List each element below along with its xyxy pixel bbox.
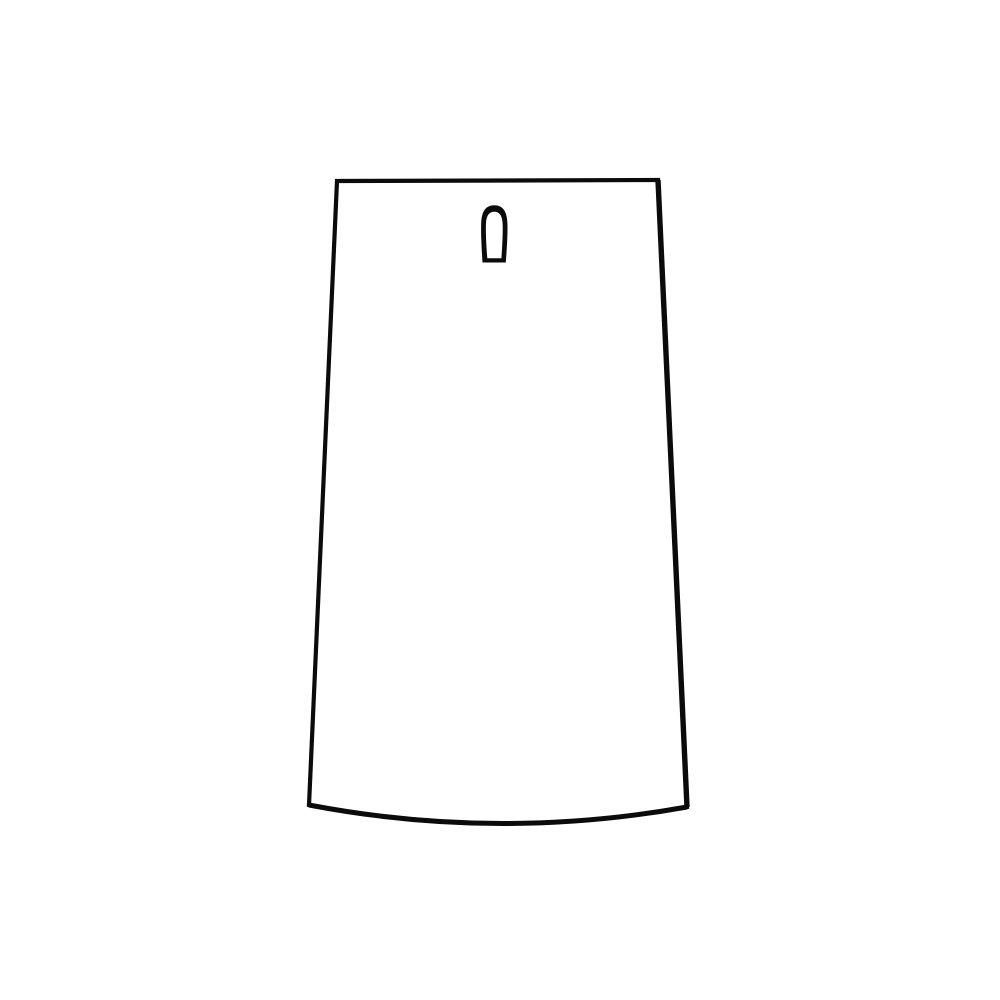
hang-tag-illustration (0, 0, 1000, 1000)
tag-outline (309, 180, 687, 824)
canvas (0, 0, 1000, 1000)
